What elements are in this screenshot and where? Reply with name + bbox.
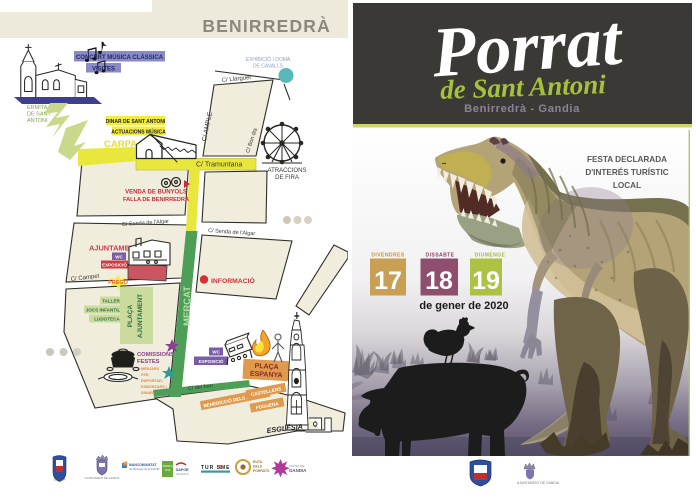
svg-text:PORRATS: PORRATS bbox=[253, 469, 270, 473]
svg-text:DE CAVALLS: DE CAVALLS bbox=[253, 64, 284, 70]
svg-text:D'INTERÉS TURÍSTIC: D'INTERÉS TURÍSTIC bbox=[585, 167, 668, 177]
svg-text:ERMITA: ERMITA bbox=[27, 105, 48, 111]
svg-text:LUDOTECA: LUDOTECA bbox=[94, 317, 120, 322]
svg-text:AJUNTAMENT DE GANDIA: AJUNTAMENT DE GANDIA bbox=[85, 476, 120, 480]
svg-text:MENJARS: MENJARS bbox=[141, 367, 160, 371]
svg-text:WC: WC bbox=[212, 350, 220, 355]
svg-text:C/ Tramuntana: C/ Tramuntana bbox=[196, 162, 242, 169]
svg-text:AJUNTAMENT DE GANDIA: AJUNTAMENT DE GANDIA bbox=[517, 481, 560, 485]
svg-text:AJUNTAMENT: AJUNTAMENT bbox=[137, 294, 144, 338]
svg-text:EMPORTAR,: EMPORTAR, bbox=[141, 379, 163, 383]
svg-text:19: 19 bbox=[472, 267, 500, 295]
svg-text:17: 17 bbox=[374, 267, 402, 295]
svg-text:DINARS: DINARS bbox=[141, 391, 156, 395]
svg-text:FESTES: FESTES bbox=[137, 359, 160, 365]
svg-text:PLAÇA: PLAÇA bbox=[254, 363, 278, 371]
svg-text:LOCAL: LOCAL bbox=[613, 181, 641, 190]
svg-text:18: 18 bbox=[425, 267, 453, 295]
svg-text:COMISSIONS: COMISSIONS bbox=[137, 352, 174, 358]
svg-text:JOCS INFANTILS: JOCS INFANTILS bbox=[86, 308, 124, 313]
svg-text:RUTA: RUTA bbox=[253, 460, 263, 464]
svg-text:de gener de 2020: de gener de 2020 bbox=[419, 300, 508, 312]
svg-text:DIVENDRES: DIVENDRES bbox=[371, 253, 405, 259]
svg-text:GANDIA: GANDIA bbox=[54, 478, 66, 482]
svg-text:de Municipis de la SAFOR: de Municipis de la SAFOR bbox=[129, 467, 160, 471]
svg-text:MANCOMUNITAT: MANCOMUNITAT bbox=[129, 463, 157, 467]
svg-text:ACTUACIONS MÚSICA: ACTUACIONS MÚSICA bbox=[111, 128, 166, 135]
svg-text:Benirredrà - Gandia: Benirredrà - Gandia bbox=[464, 103, 580, 115]
svg-text:INFORMACIÓ: INFORMACIÓ bbox=[211, 276, 255, 285]
svg-text:DIUMENGE: DIUMENGE bbox=[475, 253, 506, 259]
svg-text:EXHIBICIÓ I DOMA: EXHIBICIÓ I DOMA bbox=[246, 56, 291, 63]
svg-text:DE FIRA: DE FIRA bbox=[275, 175, 299, 181]
svg-text:de Sant Antoni: de Sant Antoni bbox=[440, 69, 607, 105]
svg-text:GANDIA: GANDIA bbox=[289, 468, 307, 473]
svg-text:FESTA DECLARADA: FESTA DECLARADA bbox=[587, 155, 667, 164]
svg-text:FALLA DE BENIRREDRÀ: FALLA DE BENIRREDRÀ bbox=[123, 196, 189, 203]
svg-text:CONCERT MÚSICA CLÀSSICA: CONCERT MÚSICA CLÀSSICA bbox=[76, 54, 164, 61]
svg-text:VENDA DE BUNYOLS: VENDA DE BUNYOLS bbox=[125, 190, 187, 196]
svg-text:DINAR DE SANT ANTONI: DINAR DE SANT ANTONI bbox=[106, 119, 166, 125]
svg-text:VIVA: VIVA bbox=[165, 468, 171, 472]
svg-text:ANTONI: ANTONI bbox=[27, 118, 48, 124]
svg-text:TUR SME: TUR SME bbox=[201, 465, 231, 471]
svg-text:MERCAT: MERCAT bbox=[182, 286, 193, 326]
svg-text:TALLERS: TALLERS bbox=[102, 299, 123, 304]
svg-text:PREGÓ: PREGÓ bbox=[108, 278, 129, 286]
svg-text:CARPA: CARPA bbox=[104, 139, 137, 150]
svg-text:EXPOSICIÓ: EXPOSICIÓ bbox=[199, 357, 224, 364]
svg-text:ATRACCIONS: ATRACCIONS bbox=[268, 168, 307, 174]
svg-text:DELS: DELS bbox=[253, 465, 263, 469]
svg-text:SAFOR: SAFOR bbox=[176, 468, 189, 472]
svg-text:ESMORZARS I: ESMORZARS I bbox=[141, 385, 167, 389]
svg-text:PLAÇA: PLAÇA bbox=[127, 305, 134, 328]
svg-text:TERRA: TERRA bbox=[162, 464, 172, 468]
svg-text:DISSABTE: DISSABTE bbox=[426, 253, 455, 259]
svg-text:PER: PER bbox=[141, 373, 149, 377]
svg-text:EXPOSICIÓ: EXPOSICIÓ bbox=[102, 261, 127, 268]
svg-text:WC: WC bbox=[115, 254, 123, 259]
